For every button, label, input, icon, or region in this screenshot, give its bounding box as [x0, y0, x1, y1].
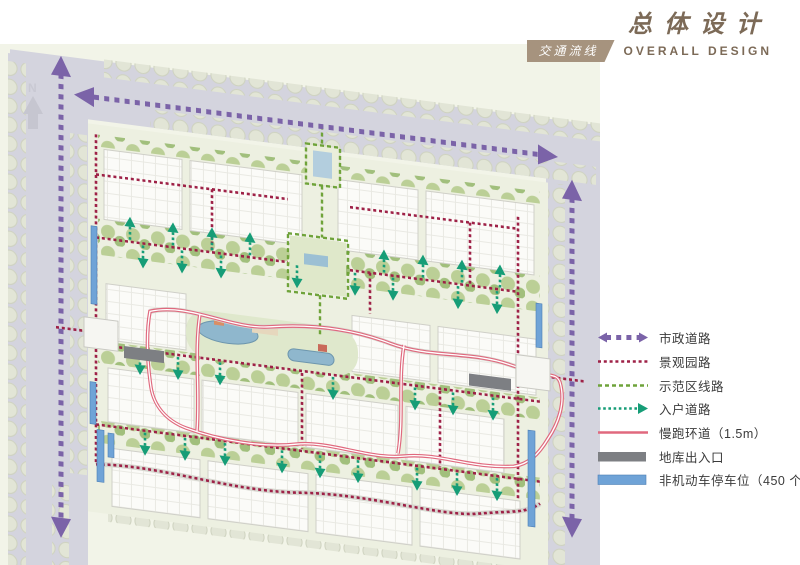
- garden-path-swatch-icon: [596, 354, 650, 369]
- legend-item-entry-road: 入户道路: [596, 397, 800, 421]
- garage-entrance-swatch-icon: [596, 449, 650, 464]
- legend-item-garden-path: 景观园路: [596, 350, 800, 374]
- legend-item-jogging-loop: 慢跑环道（1.5m）: [596, 421, 800, 445]
- bicycle-parking-swatch-icon: [596, 472, 650, 487]
- presentation-slide: N 总体设计 交通流线 OVERALL DESIGN 市政道路 景观园路: [0, 0, 800, 565]
- legend-item-demo-route: 示范区线路: [596, 373, 800, 397]
- page-title-en: OVERALL DESIGN: [624, 44, 772, 58]
- tilted-site: [8, 47, 600, 565]
- legend-label: 慢跑环道（1.5m）: [659, 423, 767, 442]
- legend-label: 入户道路: [659, 399, 711, 418]
- demo-route-swatch-icon: [596, 378, 650, 393]
- jogging-loop-swatch-icon: [596, 425, 650, 440]
- section-badge: 交通流线: [527, 40, 615, 62]
- legend-item-municipal: 市政道路: [596, 326, 800, 350]
- title-block: 总体设计 交通流线 OVERALL DESIGN: [552, 12, 772, 62]
- entry-road-swatch-icon: [596, 401, 650, 416]
- page-title-cn: 总体设计: [552, 12, 772, 36]
- legend-label: 景观园路: [659, 352, 711, 371]
- site-plan-map: N: [0, 0, 600, 565]
- legend-item-bicycle-parking: 非机动车停车位（450 个）: [596, 468, 800, 492]
- svg-text:N: N: [28, 81, 37, 95]
- municipal-road-swatch-icon: [596, 330, 650, 345]
- legend-label: 示范区线路: [659, 376, 724, 395]
- legend-item-garage-entrance: 地库出入口: [596, 444, 800, 468]
- legend-label: 地库出入口: [659, 447, 724, 466]
- map-legend: 市政道路 景观园路 示范区线路 入户道路 慢跑环道（1.5m）: [596, 326, 800, 492]
- legend-label: 市政道路: [659, 328, 711, 347]
- legend-label: 非机动车停车位（450 个）: [659, 470, 800, 489]
